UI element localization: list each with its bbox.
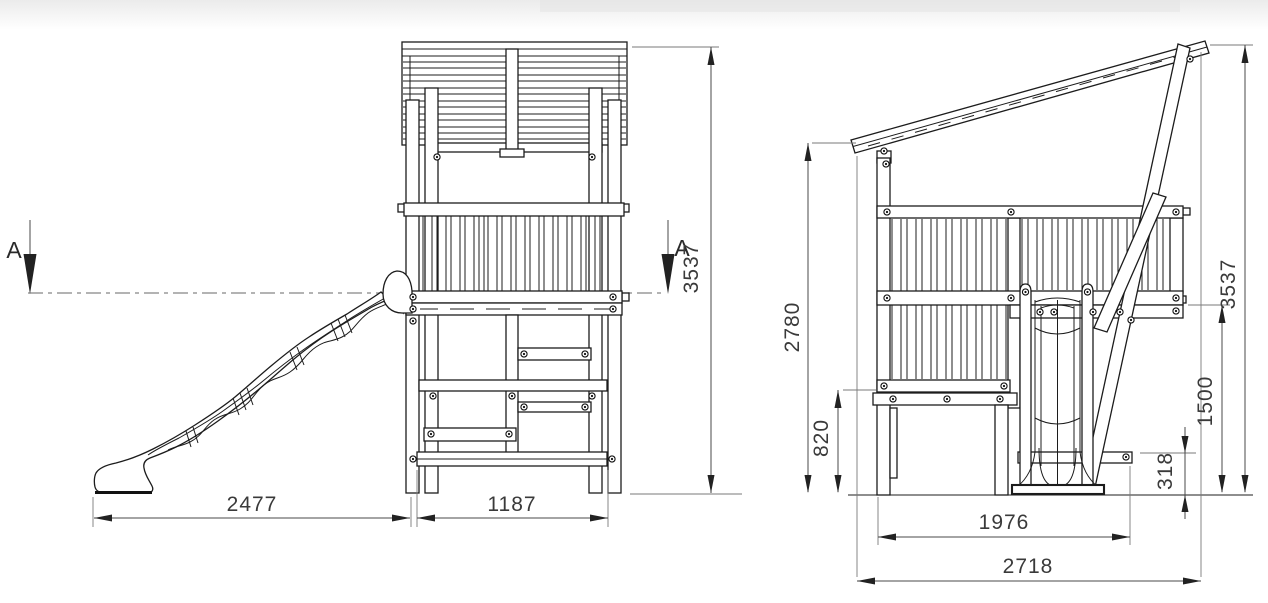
dim-label-front-total-height: 3537 <box>680 243 703 294</box>
front-view <box>94 42 629 493</box>
balusters-front <box>423 216 600 291</box>
dim-label-rail-height: 1500 <box>1194 376 1217 427</box>
dim-label-base-length: 1976 <box>979 511 1030 534</box>
platform-front <box>398 291 629 315</box>
drawing-canvas: A A 2477 1187 3537 2780 820 318 1500 353… <box>0 0 1268 603</box>
section-label-left: A <box>6 237 22 263</box>
section-cut-line <box>24 220 675 294</box>
section-arrow-right <box>662 254 675 294</box>
dim-label-overall-length: 2718 <box>1003 555 1054 578</box>
dim-label-tower-width: 1187 <box>487 493 536 516</box>
roof-side <box>851 41 1209 153</box>
dim-label-slide-reach: 2477 <box>227 493 278 516</box>
section-arrow-left <box>24 254 37 294</box>
slide-front <box>94 271 412 493</box>
handrail-front <box>398 203 629 216</box>
technical-drawing-svg: A A 2477 1187 3537 2780 820 318 1500 353… <box>0 0 1268 603</box>
lower-frame-front <box>417 315 607 466</box>
dim-label-front-height: 2780 <box>781 302 804 353</box>
side-view <box>848 41 1253 495</box>
slide-side <box>1012 284 1104 494</box>
dim-label-step-height: 318 <box>1154 452 1177 490</box>
dim-label-side-total-height: 3537 <box>1217 259 1240 310</box>
dim-label-deck-height: 820 <box>810 419 833 457</box>
slide-entry-lip <box>383 271 412 313</box>
